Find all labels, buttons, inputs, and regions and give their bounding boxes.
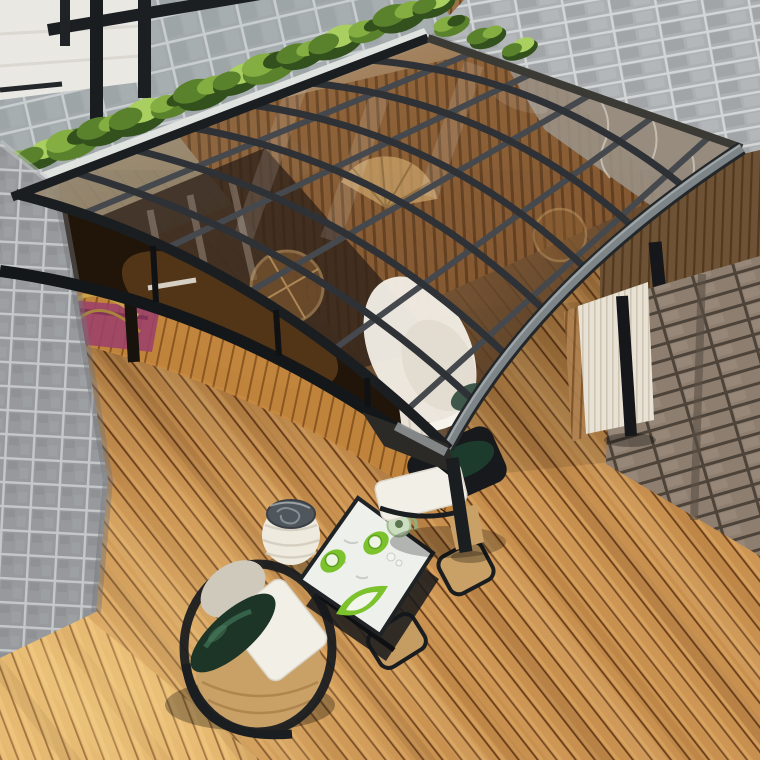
saucer-cup xyxy=(369,536,382,549)
teapot-lid xyxy=(395,520,403,528)
pleated-screen xyxy=(578,282,654,434)
scene-canvas xyxy=(0,0,760,760)
railing-post xyxy=(60,0,70,46)
interior-table-leg xyxy=(130,298,134,362)
post-shadow xyxy=(451,551,489,563)
small-cup xyxy=(387,553,395,561)
chair-shadow xyxy=(390,526,506,558)
saucer-cup xyxy=(326,554,339,567)
small-cup xyxy=(396,560,402,566)
patio-canopy-photo xyxy=(0,0,760,760)
railing-post-tall xyxy=(90,0,103,136)
